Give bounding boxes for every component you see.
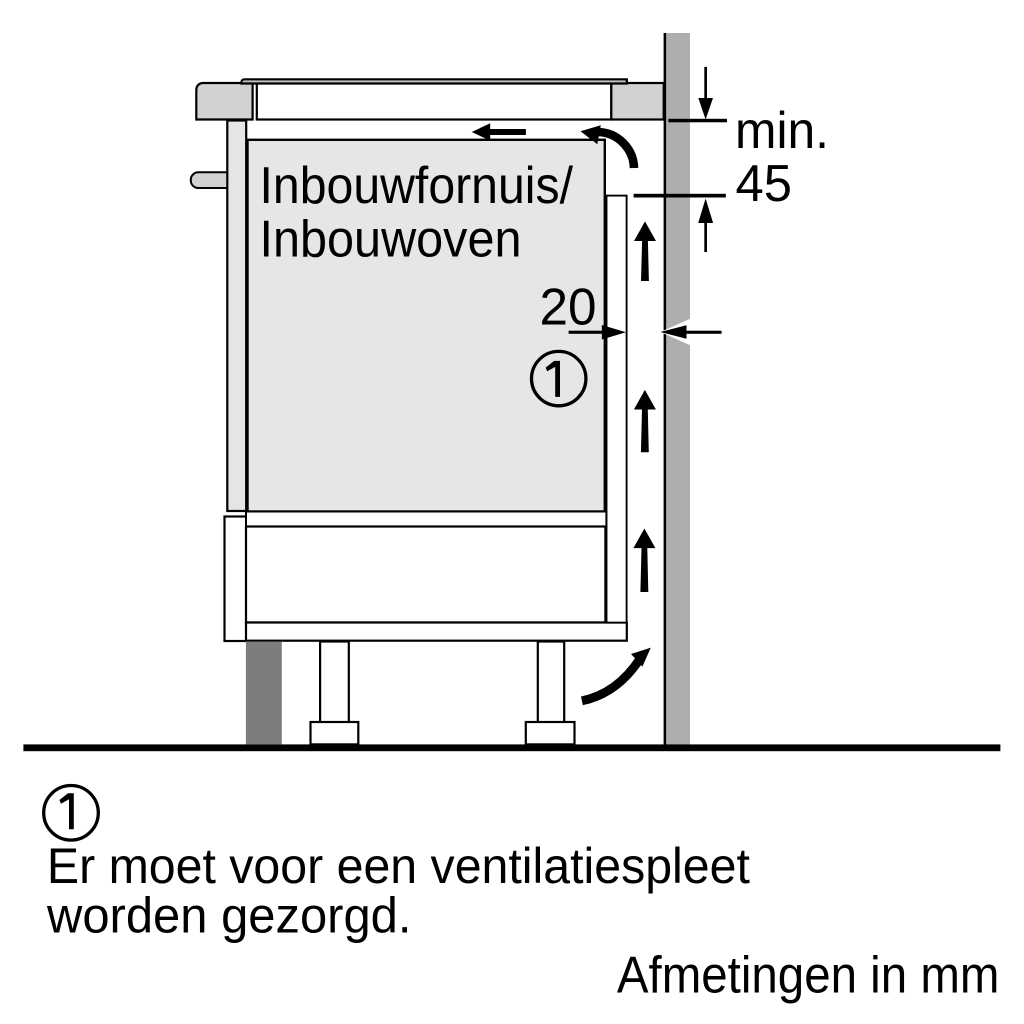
svg-text:45: 45 — [736, 155, 793, 213]
svg-text:20: 20 — [540, 279, 597, 337]
svg-text:Inbouwfornuis/: Inbouwfornuis/ — [260, 157, 574, 215]
svg-text:worden gezorgd.: worden gezorgd. — [46, 887, 411, 943]
svg-text:min.: min. — [735, 102, 829, 160]
svg-text:Inbouwoven: Inbouwoven — [260, 211, 522, 269]
svg-text:Er moet voor een ventilatiespl: Er moet voor een ventilatiespleet — [47, 838, 750, 894]
svg-text:Afmetingen in mm: Afmetingen in mm — [617, 947, 1000, 1005]
